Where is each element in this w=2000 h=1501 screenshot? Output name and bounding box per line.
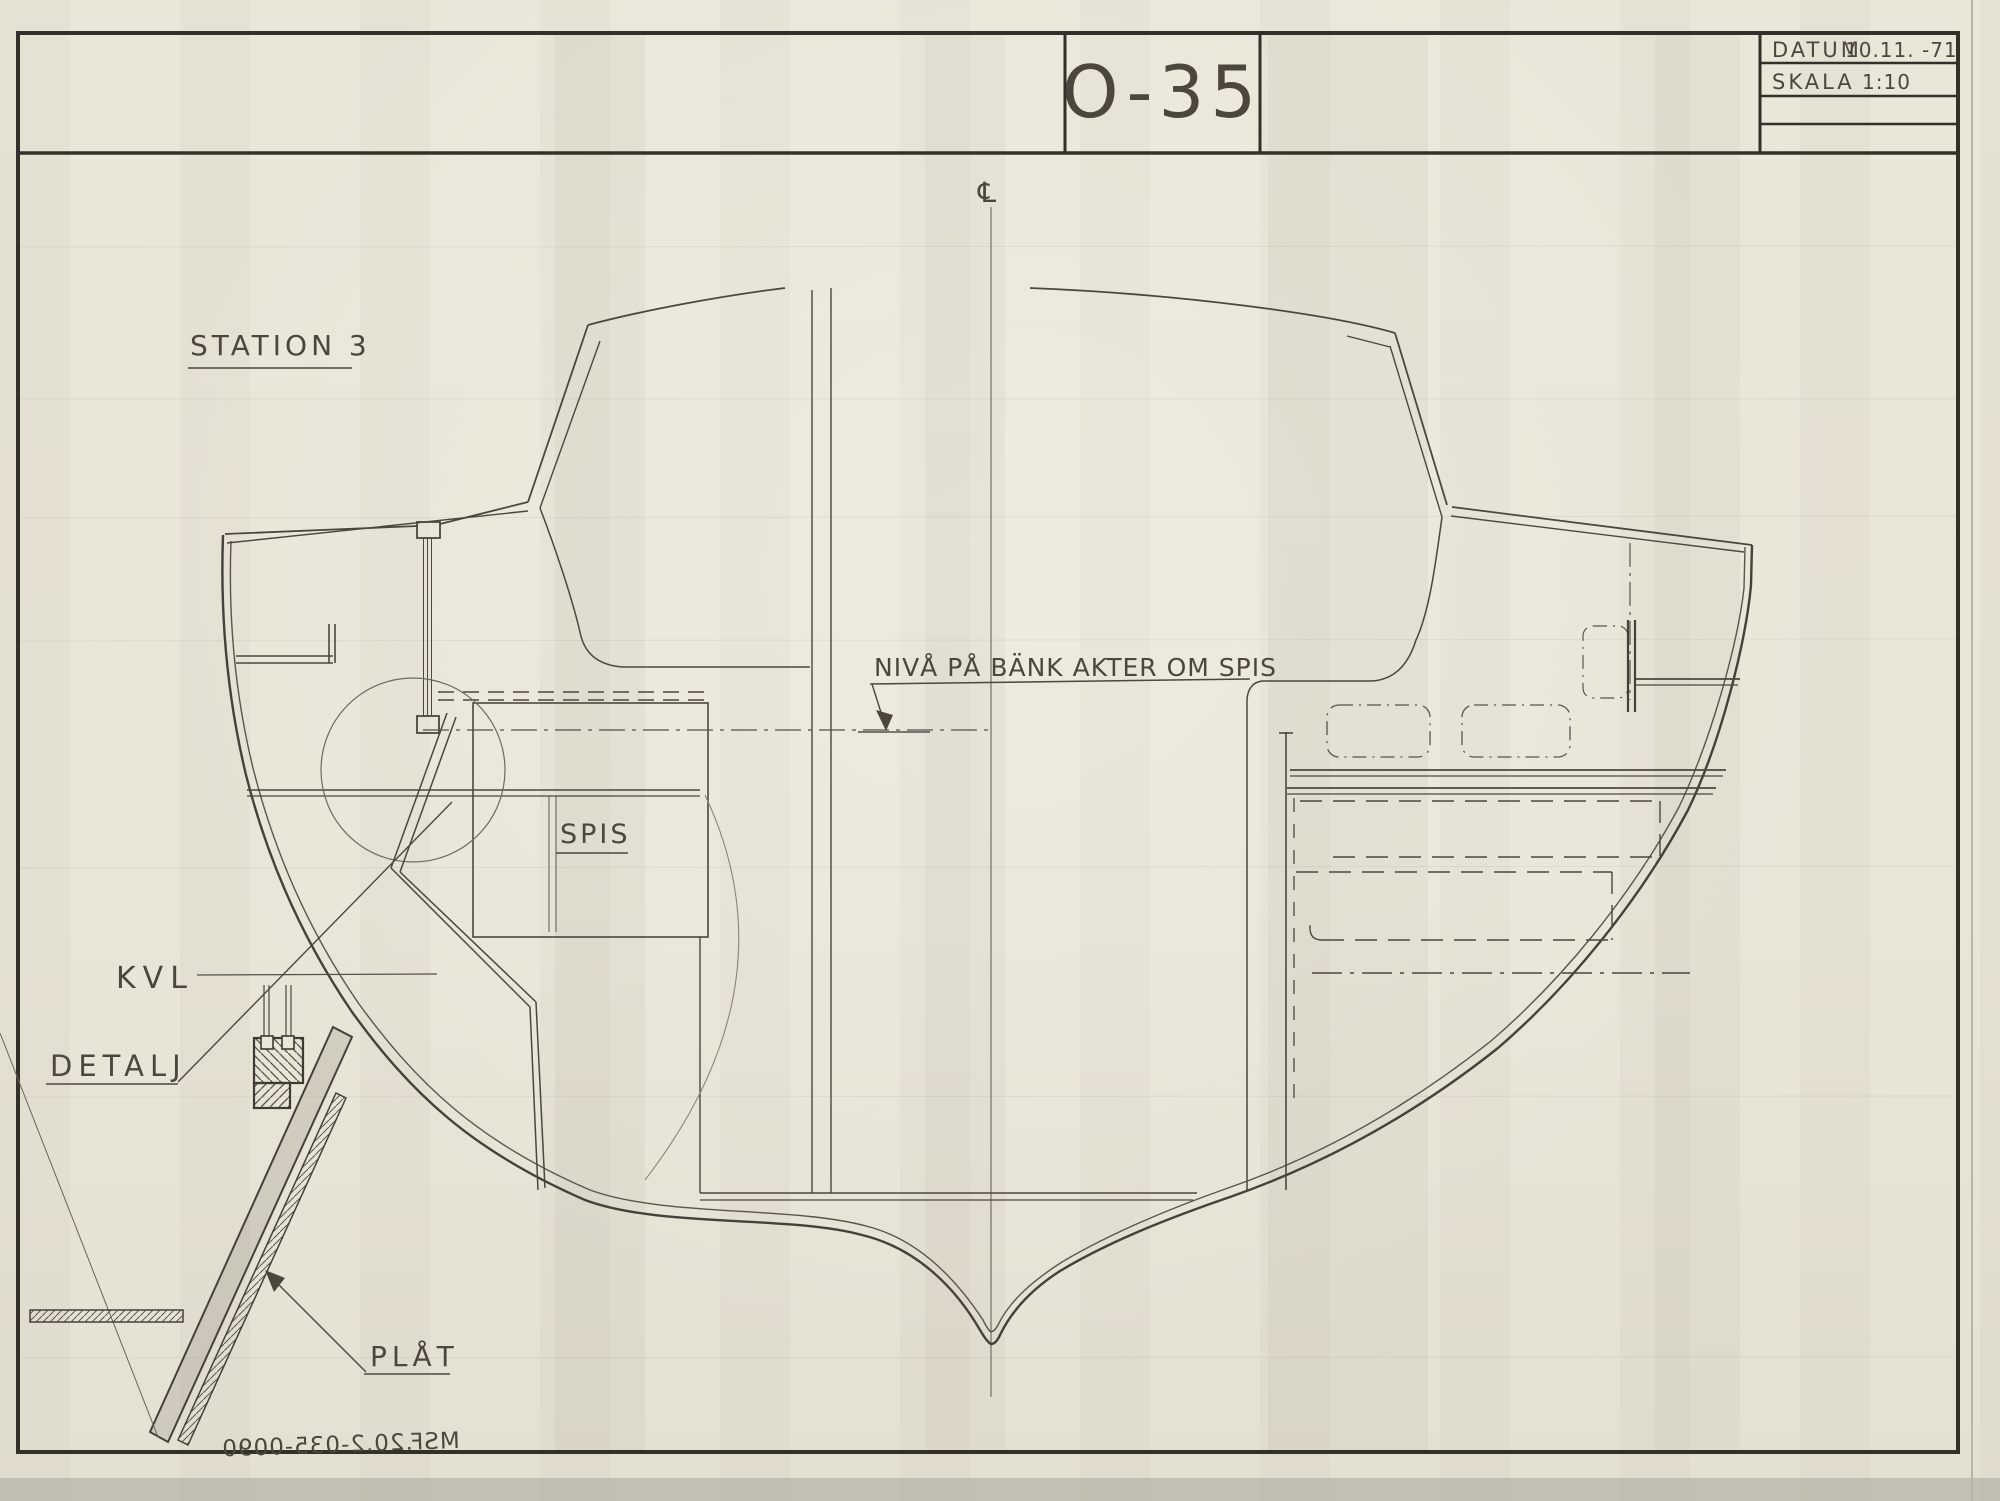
drawing-linework: O-35 DATUM 10.11. -71 SKALA 1:10 ℄ bbox=[0, 0, 2000, 1501]
datum-value: 10.11. -71 bbox=[1845, 38, 1958, 62]
detail-block-lower bbox=[254, 1083, 290, 1108]
mast-post bbox=[417, 522, 440, 733]
station-label-group: STATION 3 bbox=[188, 329, 371, 368]
chine-strips bbox=[391, 713, 545, 1190]
centerline-posts bbox=[812, 288, 831, 1193]
skala-value: 1:10 bbox=[1862, 70, 1911, 94]
detalj-label: DETALJ bbox=[50, 1049, 187, 1083]
plat-leader bbox=[265, 1270, 366, 1372]
plat-label: PLÅT bbox=[370, 1339, 459, 1373]
doc-number-mirrored: MSF.20.2-035-0090 bbox=[221, 1428, 460, 1462]
bench-level-line bbox=[423, 730, 988, 732]
kvl-label: KVL bbox=[116, 961, 194, 996]
plat-label-group: PLÅT bbox=[364, 1339, 459, 1374]
detail-plate-strip bbox=[178, 1093, 346, 1445]
centerline-symbol: ℄ bbox=[977, 176, 996, 209]
detail-plank-inner-edge bbox=[0, 1033, 158, 1437]
detail-bolts bbox=[264, 985, 291, 1042]
left-shelf-bracket bbox=[236, 624, 335, 663]
detail-notch-right bbox=[282, 1036, 294, 1049]
spis-label-group: SPIS bbox=[556, 819, 631, 853]
detail-notch-left bbox=[261, 1036, 273, 1049]
station-label: STATION 3 bbox=[190, 329, 371, 362]
detalj-label-group: DETALJ bbox=[46, 1049, 187, 1084]
detail-floor-bar bbox=[30, 1310, 183, 1322]
niva-leader bbox=[872, 684, 893, 731]
skala-label: SKALA bbox=[1772, 70, 1855, 94]
detail-plank bbox=[150, 1027, 352, 1442]
sheet-bottom-shadow bbox=[0, 1478, 2000, 1501]
spis-label: SPIS bbox=[560, 819, 631, 850]
niva-label: NIVÅ PÅ BÄNK AKTER OM SPIS bbox=[874, 653, 1277, 682]
niva-label-group: NIVÅ PÅ BÄNK AKTER OM SPIS bbox=[870, 653, 1277, 684]
stove-swing-arc bbox=[645, 795, 739, 1180]
drawing-number: O-35 bbox=[1062, 50, 1262, 134]
leader-lines bbox=[178, 684, 893, 1372]
kvl-line bbox=[197, 974, 437, 975]
drawing-sheet: O-35 DATUM 10.11. -71 SKALA 1:10 ℄ bbox=[0, 0, 2000, 1501]
